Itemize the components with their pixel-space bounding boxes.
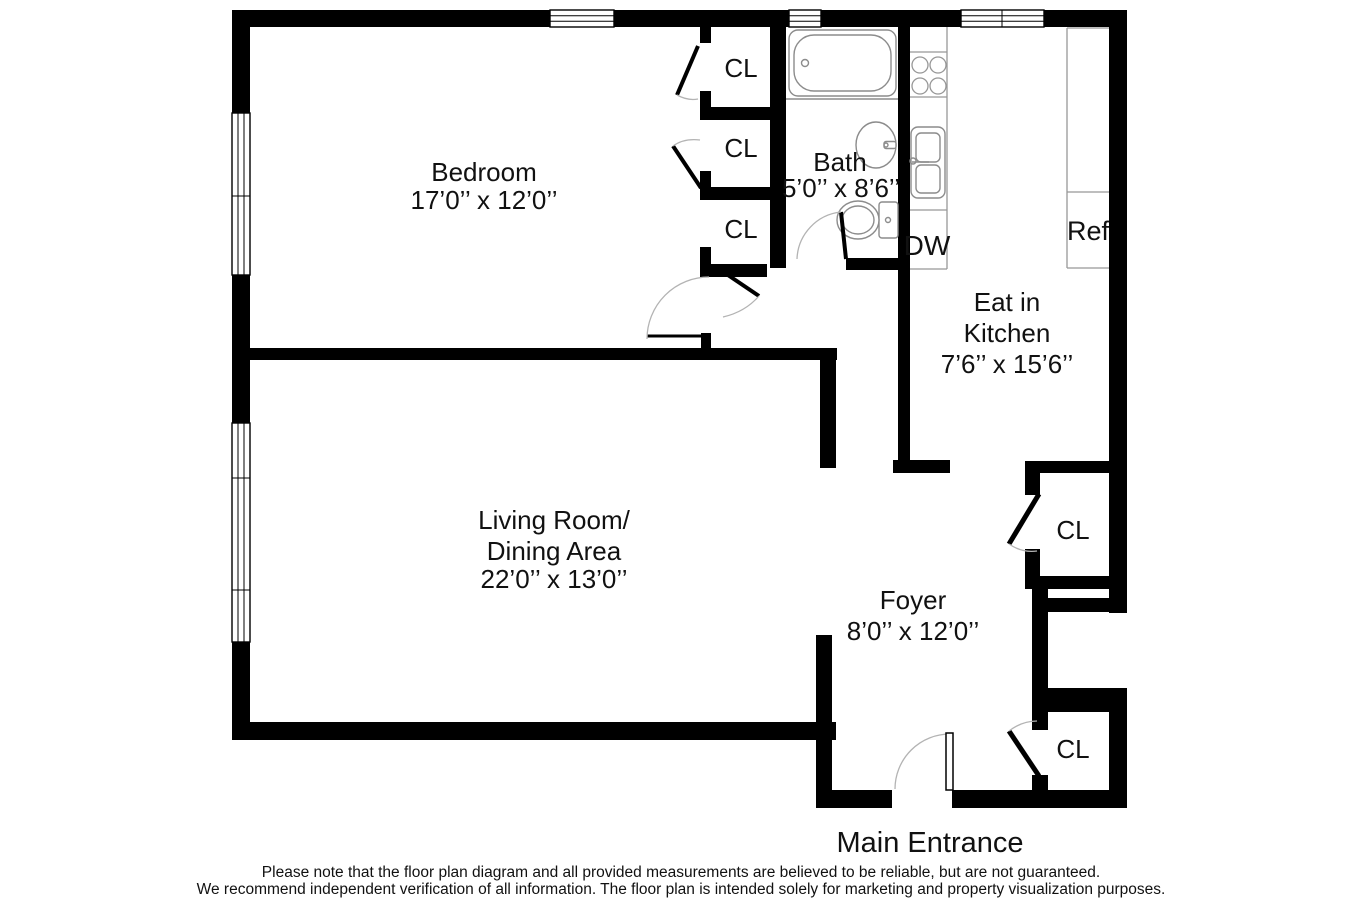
closet3-label: CL — [724, 214, 757, 244]
foyer-dimensions: 8’0’’ x 12’0’’ — [847, 616, 980, 646]
bedroom-label: Bedroom — [431, 157, 537, 187]
wall-bedroom-stub-d — [700, 247, 711, 264]
kitchen-sink-icon — [910, 127, 945, 198]
closet2-door — [673, 140, 701, 188]
wall-lower-closet-top — [1032, 700, 1109, 712]
wall-foyer-left-lower — [816, 635, 832, 808]
wall-entrance-left — [816, 790, 892, 808]
bath-dimensions: 5’0’’ x 8’6’’ — [782, 173, 900, 203]
window-left-bedroom — [232, 113, 250, 275]
closet1-door — [677, 46, 698, 100]
upper-closet-label: CL — [1056, 515, 1089, 545]
toilet-icon — [837, 201, 898, 239]
living-dimensions: 22’0’’ x 13’0’’ — [481, 564, 628, 594]
floor-plan-page: Bedroom 17’0’’ x 12’0’’ Bath 5’0’’ x 8’6… — [0, 0, 1371, 914]
window-top-kitchen — [961, 10, 1044, 27]
lower-closet-label: CL — [1056, 734, 1089, 764]
stove-icon — [912, 57, 946, 94]
refrigerator-label: Ref — [1067, 216, 1110, 246]
room-labels: Bedroom 17’0’’ x 12’0’’ Bath 5’0’’ x 8’6… — [197, 53, 1166, 898]
wall-foyer-left-upper — [820, 358, 836, 468]
wall-closet-divider-1 — [700, 107, 786, 120]
wall-bedroom-living-divider — [250, 348, 837, 360]
closet2-label: CL — [724, 133, 757, 163]
upper-closet-door — [1009, 494, 1039, 551]
wall-right-upper — [1109, 10, 1127, 613]
window-left-living — [232, 423, 250, 642]
living-label-line1: Living Room/ — [478, 505, 631, 535]
wall-upper-closet-top — [1025, 461, 1109, 473]
main-entrance-label: Main Entrance — [837, 827, 1024, 859]
wall-closet-divider-2 — [700, 187, 786, 200]
walls — [232, 10, 1127, 808]
main-entrance-door — [895, 733, 953, 790]
bathroom-fixtures — [786, 30, 898, 239]
kitchen-label-line1: Eat in — [974, 287, 1041, 317]
wall-kitchen-foot — [893, 460, 950, 473]
kitchen-dimensions: 7’6’’ x 15’6’’ — [941, 349, 1074, 379]
bedroom-dimensions: 17’0’’ x 12’0’’ — [411, 185, 558, 215]
foyer-label: Foyer — [880, 585, 947, 615]
closet1-label: CL — [724, 53, 757, 83]
windows — [232, 10, 1044, 642]
wall-notch-top — [1048, 598, 1127, 612]
wall-upper-closet-stub-top — [1025, 473, 1040, 495]
wall-bedroom-stub-a — [700, 27, 711, 43]
wall-closet3-bottom — [700, 264, 767, 277]
bedroom-door — [647, 277, 711, 348]
window-top-bath — [789, 10, 821, 27]
wall-entrance-right — [952, 790, 1127, 808]
bathtub-icon — [786, 30, 898, 99]
wall-right-lower — [1109, 688, 1127, 808]
wall-living-bottom — [232, 722, 836, 740]
disclaimer-line2: We recommend independent verification of… — [197, 881, 1166, 898]
wall-bedroom-stub-b — [700, 91, 711, 107]
dishwasher-label: DW — [904, 230, 951, 261]
window-top-bedroom — [550, 10, 614, 27]
floor-plan-svg: Bedroom 17’0’’ x 12’0’’ Bath 5’0’’ x 8’6… — [0, 0, 1371, 914]
disclaimer-line1: Please note that the floor plan diagram … — [262, 864, 1100, 881]
wall-foyer-right — [1032, 583, 1048, 703]
wall-bath-left — [770, 27, 786, 268]
wall-lower-closet-stub-bottom — [1032, 775, 1048, 791]
living-label-line2: Dining Area — [487, 536, 622, 566]
wall-bedroom-stub-c — [700, 171, 711, 187]
kitchen-label-line2: Kitchen — [964, 318, 1051, 348]
